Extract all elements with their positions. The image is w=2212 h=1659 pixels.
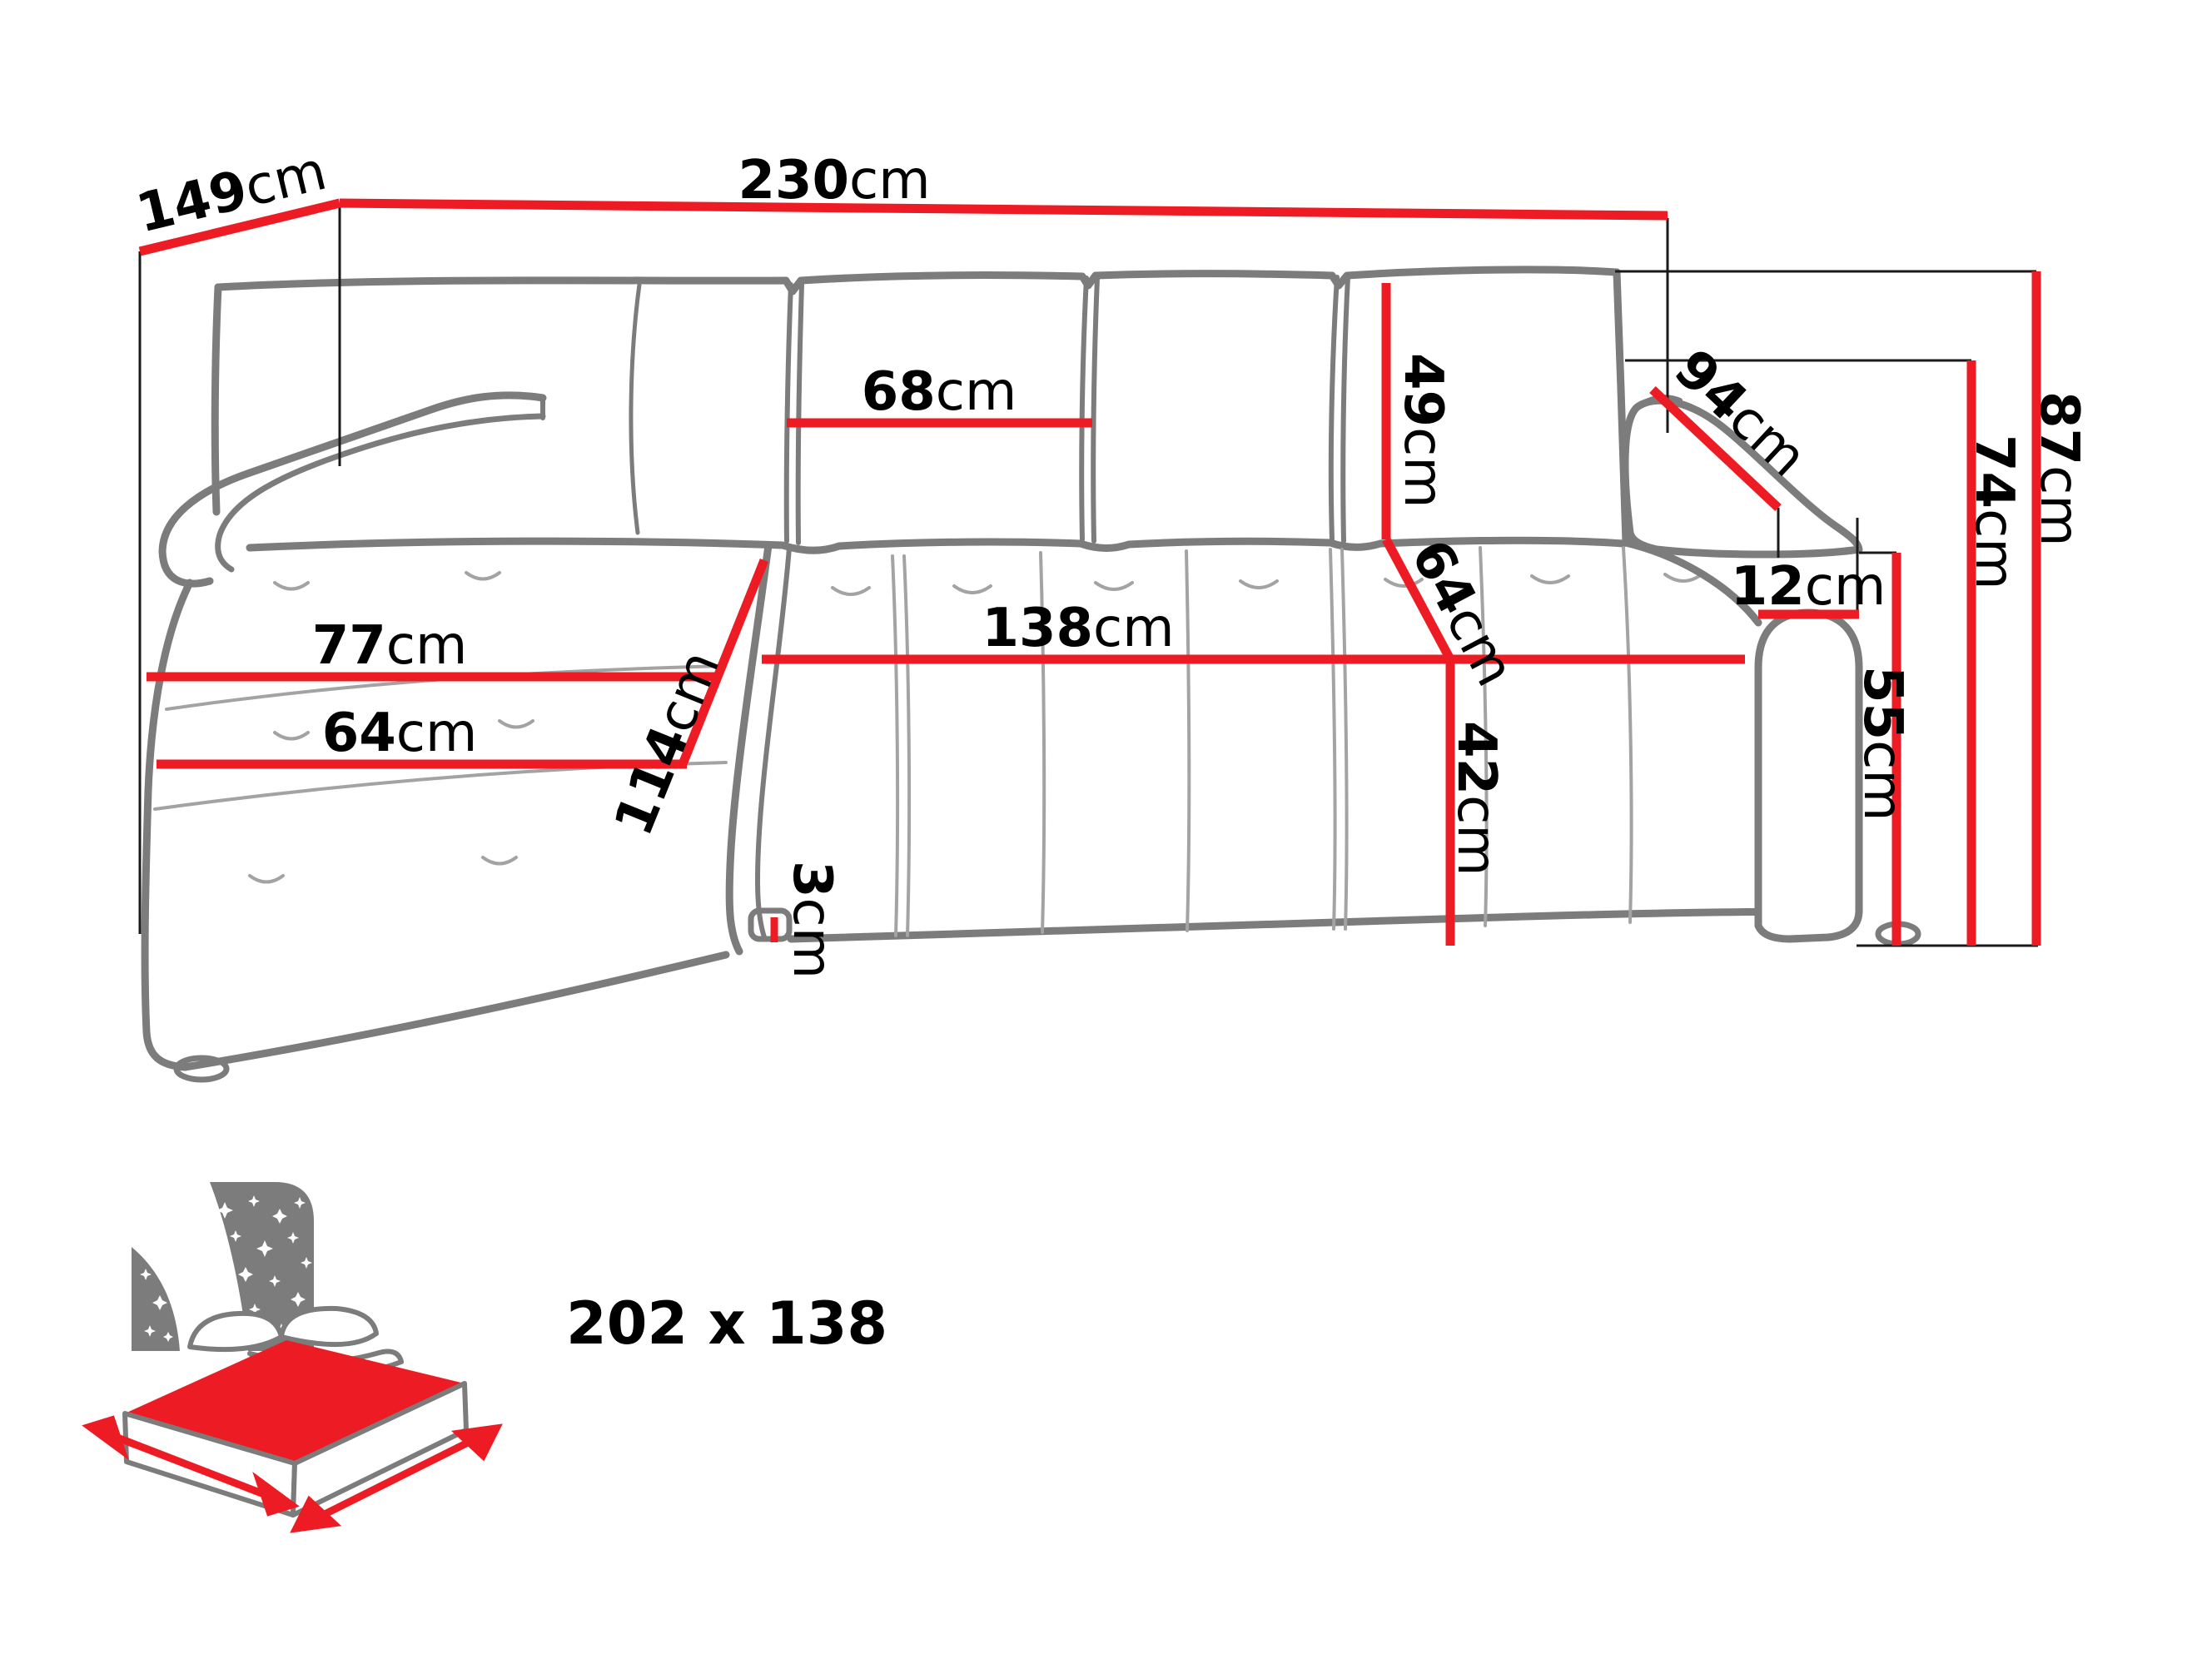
sleeping-area-text: 202 x 138 bbox=[566, 1289, 887, 1358]
back-cushion-seam bbox=[1093, 278, 1097, 541]
tuft-mark bbox=[1532, 576, 1568, 583]
tuft-mark bbox=[1096, 583, 1132, 589]
dim-label-55: 55cm bbox=[1852, 666, 1913, 822]
seat-seam bbox=[1342, 549, 1347, 929]
back-cushion-seam bbox=[787, 285, 791, 541]
tuft-mark bbox=[275, 583, 308, 589]
seat-seam bbox=[1623, 548, 1632, 922]
bed-pillow bbox=[190, 1314, 281, 1349]
dimension-diagram: 149cm 230cm 68cm 49cm 64cm 138cm 42cm 77… bbox=[0, 0, 2212, 1659]
dim-label-49: 49cm bbox=[1392, 353, 1454, 509]
back-cushion-seam bbox=[1081, 278, 1086, 539]
dim-label-68: 68cm bbox=[862, 361, 1017, 423]
chaise-left-edge bbox=[145, 583, 190, 1067]
dim-label-230: 230cm bbox=[738, 150, 930, 211]
back-cushion-seam bbox=[1343, 277, 1348, 541]
dim-label-77: 77cm bbox=[312, 615, 468, 677]
seat-bottom-edge bbox=[791, 911, 1858, 939]
seat-seam bbox=[1186, 551, 1189, 931]
dim-line-230 bbox=[340, 203, 1668, 216]
back-cushion-inner-line bbox=[631, 285, 639, 533]
night-sky-wedge bbox=[132, 1247, 180, 1351]
tuft-mark bbox=[483, 857, 516, 864]
sofa-back-top-edge bbox=[218, 270, 1617, 291]
right-arm-front bbox=[1758, 613, 1859, 939]
dim-label-64-left: 64cm bbox=[322, 703, 478, 764]
tuft-mark bbox=[833, 588, 869, 594]
dim-label-74: 74cm bbox=[1963, 435, 2025, 590]
dim-label-12: 12cm bbox=[1731, 556, 1886, 618]
tuft-mark bbox=[466, 573, 500, 579]
sleeping-function-icon: 202 x 138 bbox=[90, 1182, 887, 1528]
seat-seam bbox=[892, 556, 897, 936]
sofa-back-left-edge bbox=[215, 287, 218, 512]
dim-label-42: 42cm bbox=[1445, 721, 1507, 877]
tuft-mark bbox=[1665, 574, 1702, 581]
dim-label-64-mid: 64cm bbox=[1399, 530, 1526, 696]
seat-seam bbox=[904, 556, 909, 936]
back-cushion-seam bbox=[1331, 277, 1337, 539]
chaise-bottom-edge bbox=[185, 955, 726, 1067]
tuft-mark bbox=[250, 876, 283, 882]
bed-pillow bbox=[281, 1309, 376, 1344]
dim-label-87: 87cm bbox=[2028, 391, 2090, 547]
dim-label-138: 138cm bbox=[982, 598, 1174, 659]
tuft-mark bbox=[1240, 581, 1277, 588]
back-cushion-seam bbox=[798, 285, 802, 543]
tuft-mark bbox=[275, 733, 308, 739]
tuft-mark bbox=[954, 586, 991, 593]
seat-seam bbox=[1330, 549, 1335, 929]
dim-label-3: 3cm bbox=[781, 861, 843, 979]
tuft-mark bbox=[500, 721, 533, 728]
